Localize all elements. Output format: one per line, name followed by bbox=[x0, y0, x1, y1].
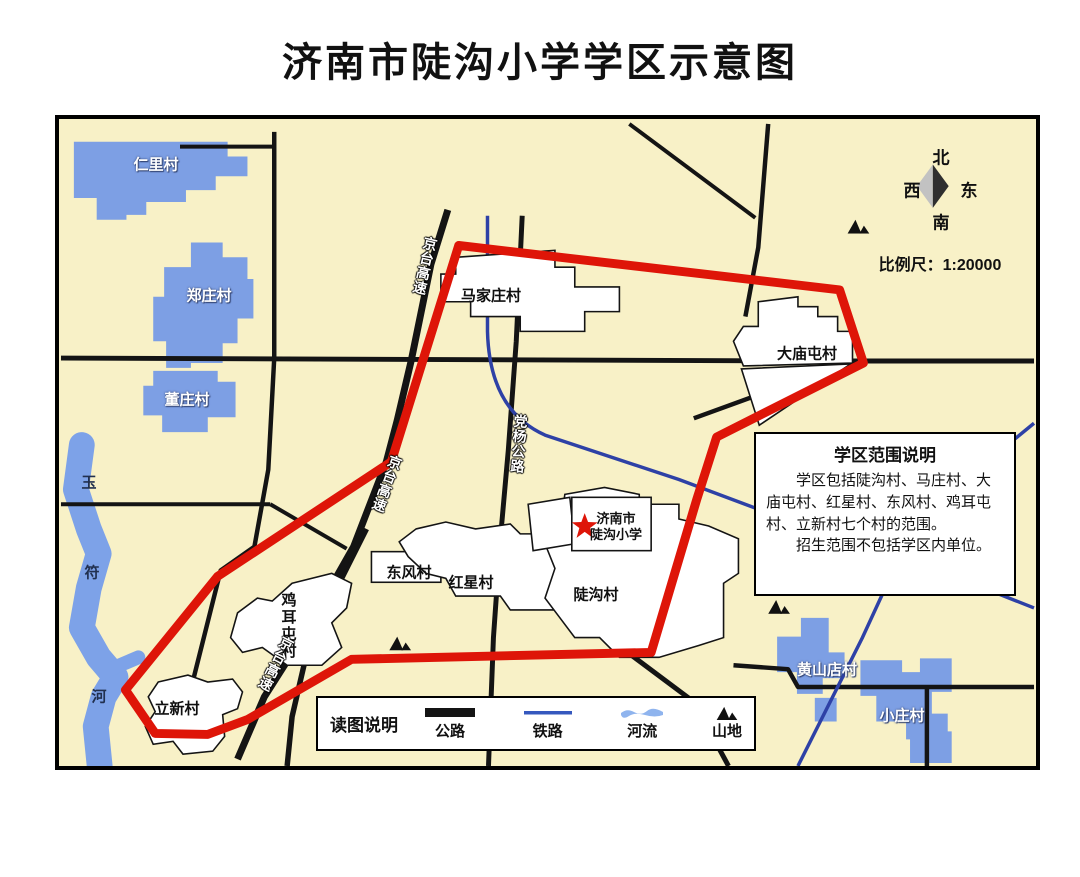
school-label-line1: 济南市 bbox=[590, 511, 642, 527]
road-label-dangyang: 党杨公路 bbox=[507, 413, 531, 474]
district-map: 仁里村 郑庄村 董庄村 黄山店村 小庄村 马家庄村 大庙屯村 东风村 红星村 陡… bbox=[55, 115, 1040, 770]
school-label: 济南市 陡沟小学 bbox=[590, 511, 642, 544]
village-label-majiazhuang: 马家庄村 bbox=[461, 285, 521, 306]
river-label-char-fu: 符 bbox=[84, 562, 99, 583]
map-legend: 读图说明 公路 铁路 河流 bbox=[316, 696, 756, 751]
school-building-tilted bbox=[528, 497, 575, 550]
river-label-char-he: 河 bbox=[91, 686, 106, 707]
school-label-line2: 陡沟小学 bbox=[590, 527, 642, 543]
village-label-damiaotun: 大庙屯村 bbox=[777, 343, 837, 364]
village-areas-white bbox=[145, 250, 852, 754]
village-label-xiaozhuang: 小庄村 bbox=[879, 705, 924, 726]
village-label-zhengzhuang: 郑庄村 bbox=[186, 285, 231, 306]
info-box-title: 学区范围说明 bbox=[766, 441, 1004, 466]
legend-title: 读图说明 bbox=[330, 711, 398, 736]
district-info-box: 学区范围说明 学区包括陡沟村、马庄村、大庙屯村、红星村、东风村、鸡耳屯村、立新村… bbox=[754, 432, 1016, 596]
compass-east-label: 东 bbox=[961, 177, 978, 202]
mountain-icon bbox=[715, 706, 739, 719]
river-yufu bbox=[76, 445, 138, 766]
village-label-renli: 仁里村 bbox=[133, 154, 178, 175]
mountain-icon bbox=[848, 220, 870, 234]
village-label-dongfeng: 东风村 bbox=[386, 562, 431, 583]
legend-label-railway: 铁路 bbox=[533, 720, 563, 741]
compass: 北 西 东 南 bbox=[885, 139, 1005, 249]
compass-south-label: 南 bbox=[933, 209, 950, 234]
village-label-dougou: 陡沟村 bbox=[573, 584, 618, 605]
mountain-icon bbox=[389, 637, 411, 651]
page-title: 济南市陡沟小学学区示意图 bbox=[0, 30, 1080, 88]
page: 济南市陡沟小学学区示意图 bbox=[0, 0, 1080, 877]
river-shape-icon bbox=[619, 706, 665, 719]
road-right-vertical bbox=[745, 124, 768, 317]
river-label-char-yu: 玉 bbox=[81, 472, 96, 493]
road-top-right-diagonal bbox=[629, 124, 755, 218]
road-left-branch bbox=[270, 504, 346, 548]
legend-label-river: 河流 bbox=[627, 720, 657, 741]
road-line-icon bbox=[424, 706, 476, 719]
legend-items: 公路 铁路 河流 山地 bbox=[424, 706, 742, 741]
road-main-horizontal bbox=[61, 358, 1034, 361]
legend-label-mountain: 山地 bbox=[712, 720, 742, 741]
legend-item-mountain: 山地 bbox=[712, 706, 742, 741]
village-label-dongzhuang: 董庄村 bbox=[164, 389, 209, 410]
legend-item-road: 公路 bbox=[424, 706, 476, 741]
village-label-lixin: 立新村 bbox=[154, 698, 199, 719]
legend-item-river: 河流 bbox=[619, 706, 665, 741]
village-label-hongxing: 红星村 bbox=[448, 572, 493, 593]
legend-item-railway: 铁路 bbox=[523, 706, 573, 741]
mountain-icon bbox=[768, 600, 790, 614]
railway-line-icon bbox=[523, 706, 573, 719]
village-label-huangshandian: 黄山店村 bbox=[797, 659, 857, 680]
compass-north-label: 北 bbox=[933, 144, 950, 169]
map-scale-label: 比例尺：1:20000 bbox=[879, 251, 1002, 275]
legend-label-road: 公路 bbox=[435, 720, 465, 741]
info-box-paragraph-1: 学区包括陡沟村、马庄村、大庙屯村、红星村、东风村、鸡耳屯村、立新村七个村的范围。 bbox=[766, 470, 1004, 535]
info-box-paragraph-2: 招生范围不包括学区内单位。 bbox=[766, 535, 1004, 557]
compass-west-label: 西 bbox=[904, 177, 921, 202]
